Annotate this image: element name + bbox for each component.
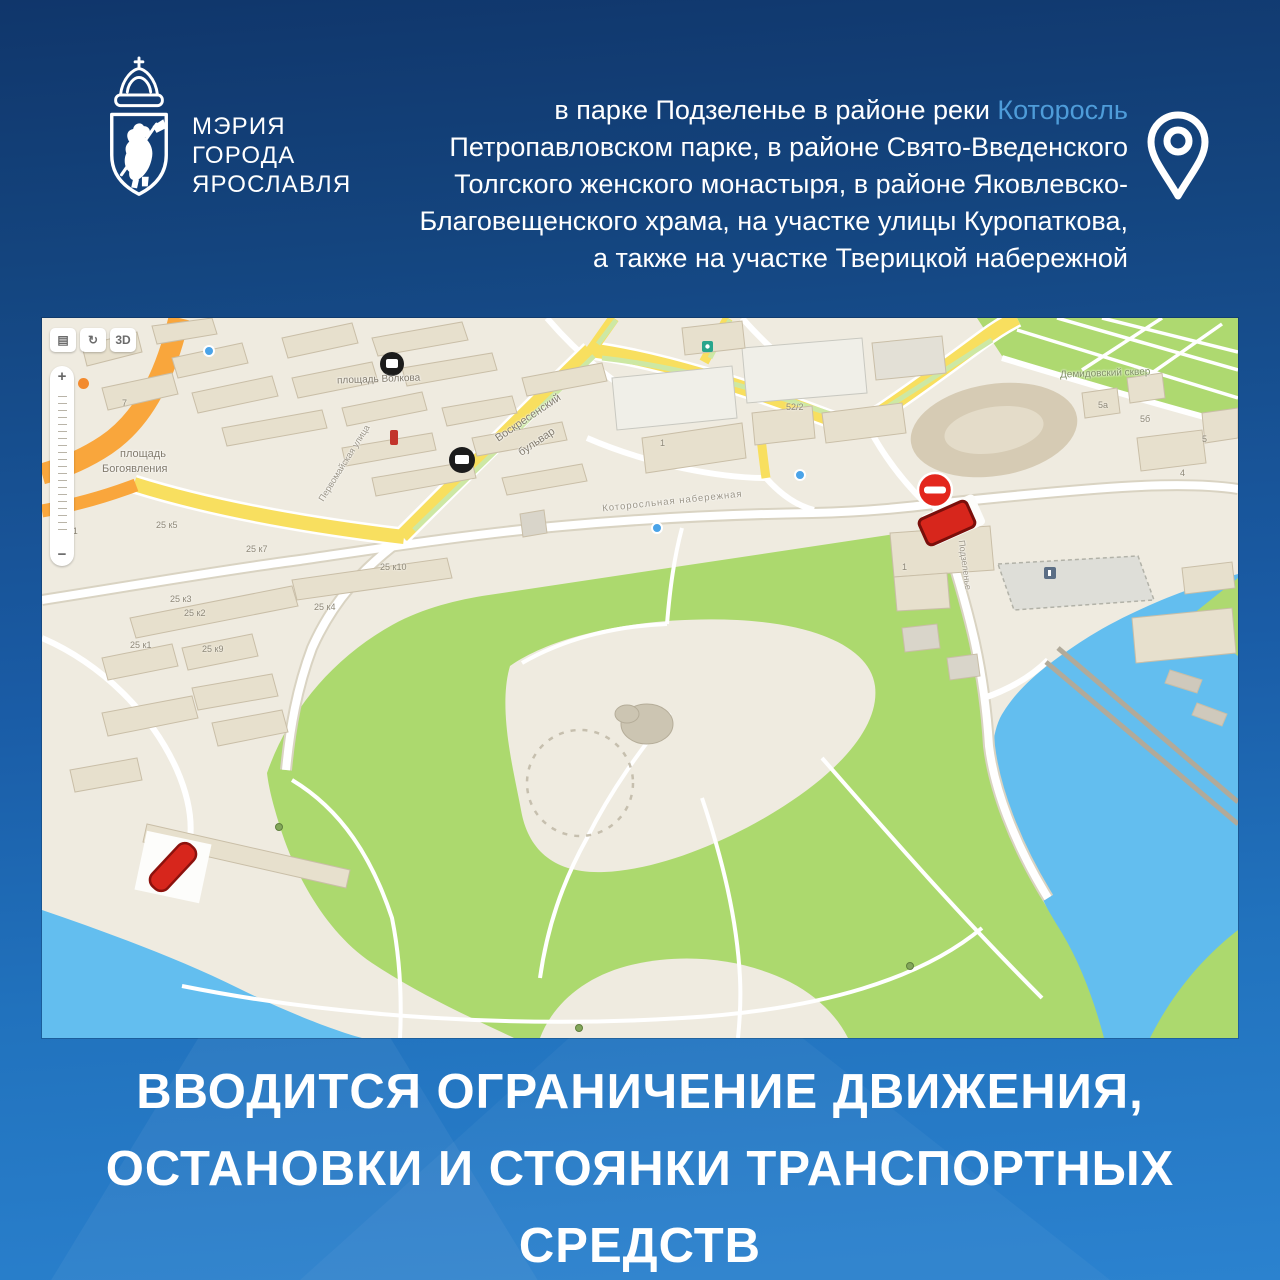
map-control-panel: ▤ ↻ 3D	[50, 328, 136, 352]
building-label: 25 к7	[246, 544, 267, 554]
building-label: 52/2	[786, 402, 804, 412]
building-label: 7	[122, 398, 127, 408]
announcement-line: Благовещенского храма, на участке улицы …	[348, 203, 1128, 240]
building-label: 4	[1180, 468, 1185, 478]
building-label: 1	[660, 438, 665, 448]
river-name-highlight: Которосль	[997, 95, 1128, 125]
rotate-view-button[interactable]: ↻	[80, 328, 106, 352]
layers-button[interactable]: ▤	[50, 328, 76, 352]
map-marker-dot	[78, 378, 89, 389]
headline: ВВОДИТСЯ ОГРАНИЧЕНИЕ ДВИЖЕНИЯ, ОСТАНОВКИ…	[0, 1054, 1280, 1280]
announcement-line-text: в парке Подзеленье в районе реки	[554, 95, 997, 125]
map-screenshot[interactable]: площадь Богоявления площадь Волкова Воск…	[42, 318, 1238, 1038]
announcement-line: Толгского женского монастыря, в районе Я…	[348, 166, 1128, 203]
org-title-line: ГОРОДА	[192, 141, 351, 170]
building-label: 25 к4	[314, 602, 335, 612]
zoom-control[interactable]: + −	[50, 366, 74, 566]
headline-line: ОСТАНОВКИ И СТОЯНКИ ТРАНСПОРТНЫХ	[0, 1131, 1280, 1208]
building-label: 25 к10	[380, 562, 406, 572]
zoom-out-button[interactable]: −	[58, 548, 67, 562]
headline-line: ВВОДИТСЯ ОГРАНИЧЕНИЕ ДВИЖЕНИЯ,	[0, 1054, 1280, 1131]
yaroslavl-coat-of-arms-icon	[92, 56, 186, 202]
street-label: Богоявления	[102, 463, 167, 475]
org-title-line: ЯРОСЛАВЛЯ	[192, 170, 351, 199]
announcement-line: в парке Подзеленье в районе реки Которос…	[348, 92, 1128, 129]
location-pin-icon	[1134, 106, 1222, 202]
building-label: 25 к3	[170, 594, 191, 604]
announcement-line: Петропавловском парке, в районе Свято-Вв…	[348, 129, 1128, 166]
announcement-text: в парке Подзеленье в районе реки Которос…	[348, 92, 1128, 277]
building-label: 5	[1202, 434, 1207, 444]
announcement-line: а также на участке Тверицкой набережной	[348, 240, 1128, 277]
headline-line: СРЕДСТВ	[0, 1208, 1280, 1280]
building-label: 5б	[1140, 414, 1150, 424]
zoom-slider[interactable]	[58, 396, 67, 536]
3d-view-button[interactable]: 3D	[110, 328, 136, 352]
building-label: 25 к1	[130, 640, 151, 650]
parking-lot	[998, 556, 1154, 610]
building-label: 25 к9	[202, 644, 223, 654]
street-label: площадь	[120, 448, 166, 460]
building-label: 1	[902, 562, 907, 572]
poster: МЭРИЯ ГОРОДА ЯРОСЛАВЛЯ в парке Подзелень…	[0, 0, 1280, 1280]
org-title: МЭРИЯ ГОРОДА ЯРОСЛАВЛЯ	[192, 112, 351, 199]
zoom-in-button[interactable]: +	[58, 370, 67, 384]
building-label: 5а	[1098, 400, 1108, 410]
org-title-line: МЭРИЯ	[192, 112, 351, 141]
building-label: 25 к5	[156, 520, 177, 530]
building-label: 25 к2	[184, 608, 205, 618]
